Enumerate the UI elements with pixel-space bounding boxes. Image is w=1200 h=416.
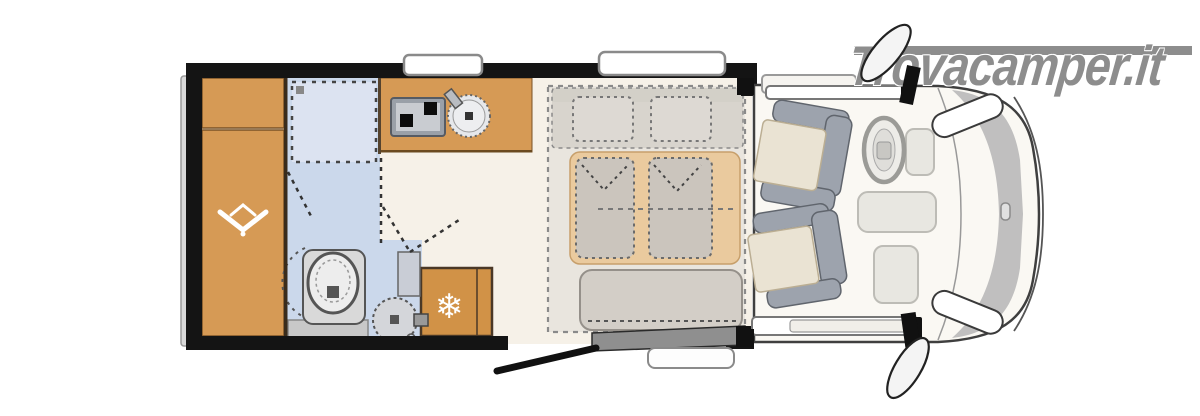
camper-floorplan-image: ❄: [0, 0, 1200, 416]
mirrors-overlay: [0, 0, 1200, 416]
side-mirror-bottom: [879, 312, 936, 404]
mirror-arm-top: [899, 65, 921, 105]
side-mirror-top: [854, 18, 921, 105]
